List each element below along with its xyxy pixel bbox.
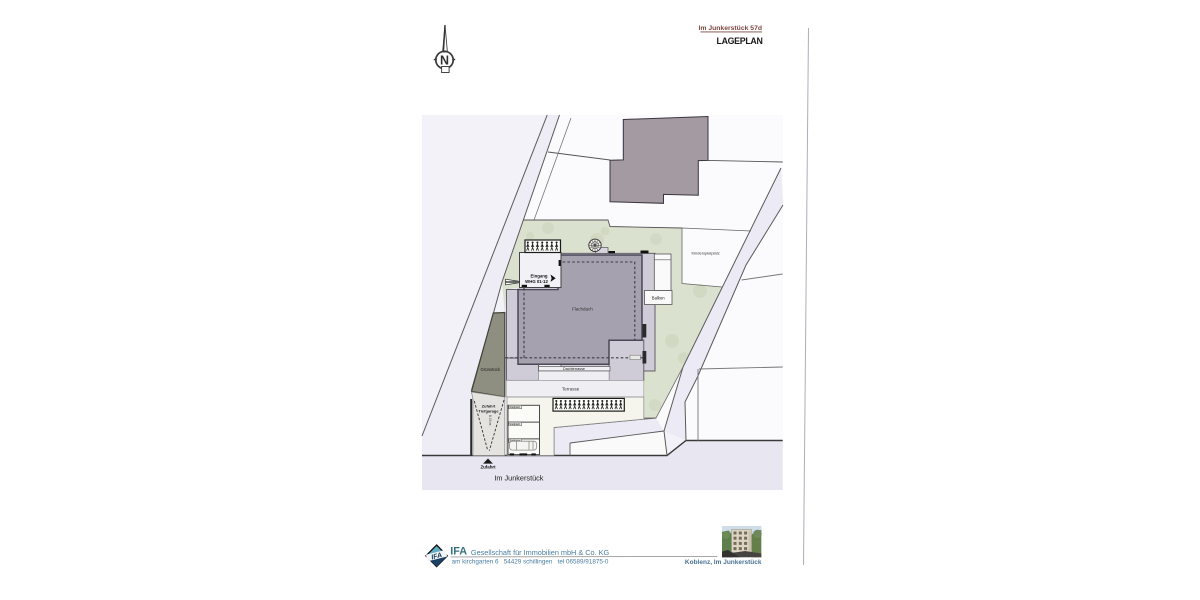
- svg-text:Im Junkerstück 57d: Im Junkerstück 57d: [699, 25, 762, 32]
- svg-text:Zufahrt: Zufahrt: [480, 465, 496, 470]
- svg-text:Koblenz, Im Junkerstück: Koblenz, Im Junkerstück: [685, 559, 762, 566]
- svg-text:IFA: IFA: [450, 546, 467, 558]
- svg-text:Flachdach: Flachdach: [572, 307, 593, 312]
- svg-text:6.00 m: 6.00 m: [488, 415, 492, 426]
- svg-text:Eingang: Eingang: [531, 274, 548, 279]
- svg-text:LAGEPLAN: LAGEPLAN: [717, 36, 763, 46]
- svg-text:Dachterrasse: Dachterrasse: [563, 367, 585, 371]
- svg-text:Stellplatz: Stellplatz: [509, 405, 520, 409]
- svg-text:Tiefgarage: Tiefgarage: [478, 409, 499, 414]
- svg-text:Balkon: Balkon: [652, 296, 665, 301]
- svg-text:am kirchgarten 6 54429 schil: am kirchgarten 6 54429 schillingen tel 0…: [452, 559, 609, 566]
- svg-text:Grünstück: Grünstück: [481, 367, 501, 372]
- svg-text:Gesellschaft für Immobilien mb: Gesellschaft für Immobilien mbH & Co. KG: [471, 548, 610, 557]
- svg-text:WHG 01-12: WHG 01-12: [525, 279, 548, 284]
- svg-text:Stellplatz: Stellplatz: [509, 422, 520, 426]
- svg-text:Terrasse: Terrasse: [562, 387, 580, 392]
- svg-text:Kinderspielplatz: Kinderspielplatz: [692, 251, 720, 256]
- svg-text:N: N: [440, 54, 449, 68]
- svg-text:Im Junkerstück: Im Junkerstück: [494, 474, 543, 483]
